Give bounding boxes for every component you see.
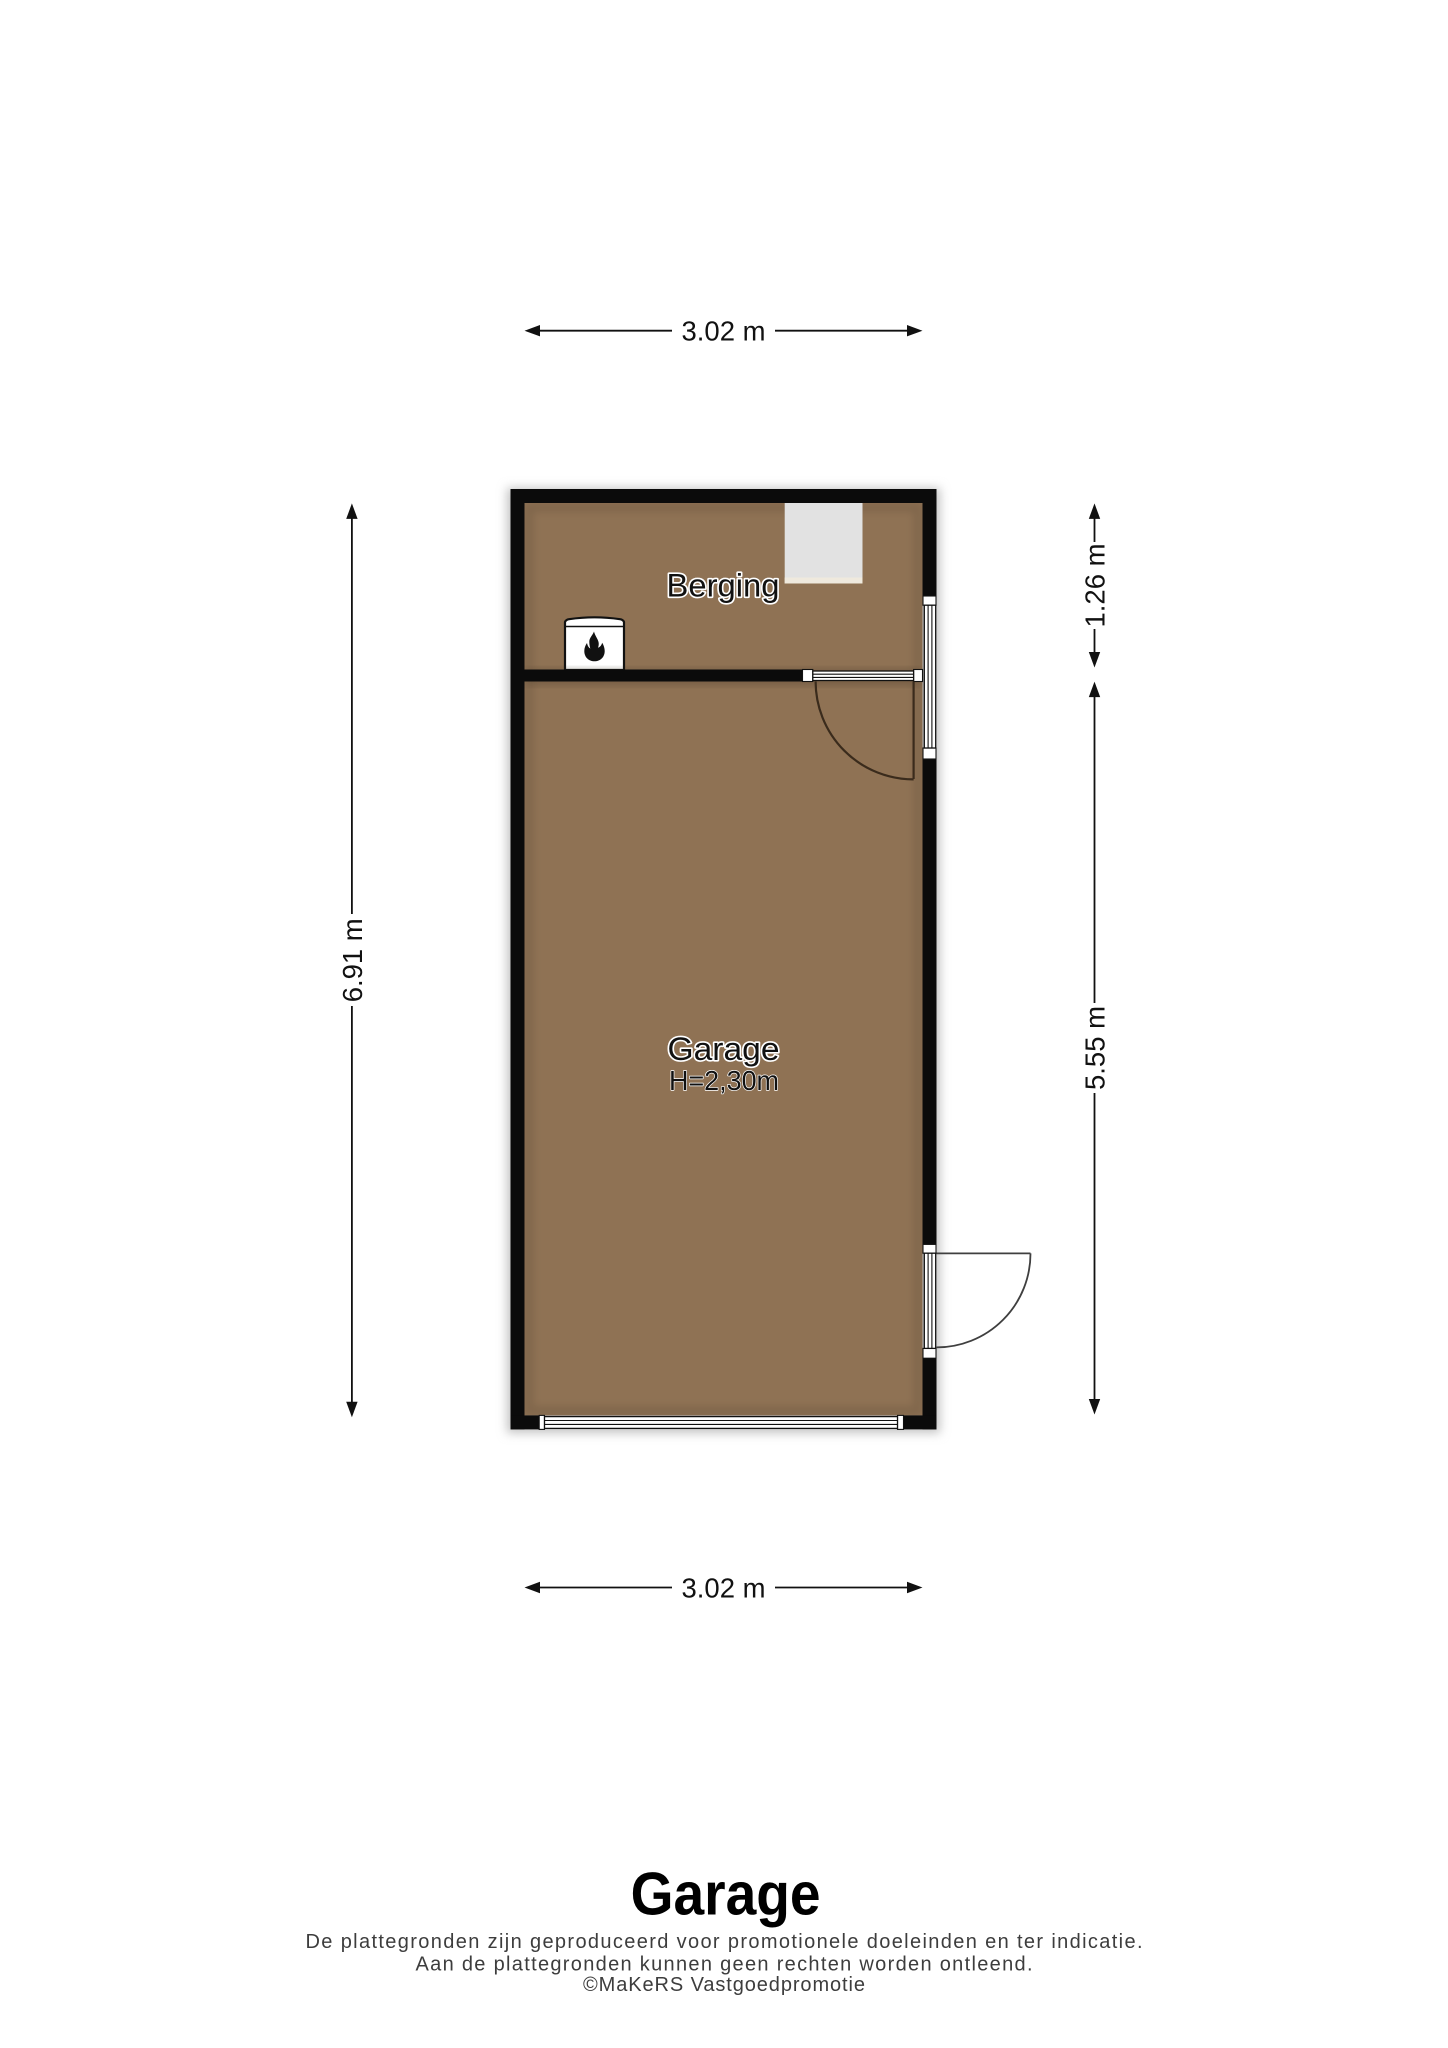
svg-text:1.26 m: 1.26 m (1080, 544, 1111, 628)
svg-text:3.02 m: 3.02 m (682, 316, 766, 347)
svg-text:©MaKeRS Vastgoedpromotie: ©MaKeRS Vastgoedpromotie (583, 1974, 865, 1996)
svg-text:Garage: Garage (668, 1031, 780, 1067)
svg-text:5.55 m: 5.55 m (1080, 1006, 1111, 1090)
svg-text:H=2,30m: H=2,30m (669, 1065, 779, 1096)
svg-text:De plattegronden zijn geproduc: De plattegronden zijn geproduceerd voor … (306, 1931, 1143, 1953)
svg-text:Berging: Berging (667, 568, 780, 604)
svg-text:Garage: Garage (631, 1861, 821, 1928)
svg-text:Aan de plattegronden kunnen ge: Aan de plattegronden kunnen geen rechten… (416, 1954, 1033, 1976)
svg-text:6.91 m: 6.91 m (337, 918, 368, 1002)
svg-text:3.02 m: 3.02 m (682, 1573, 766, 1604)
